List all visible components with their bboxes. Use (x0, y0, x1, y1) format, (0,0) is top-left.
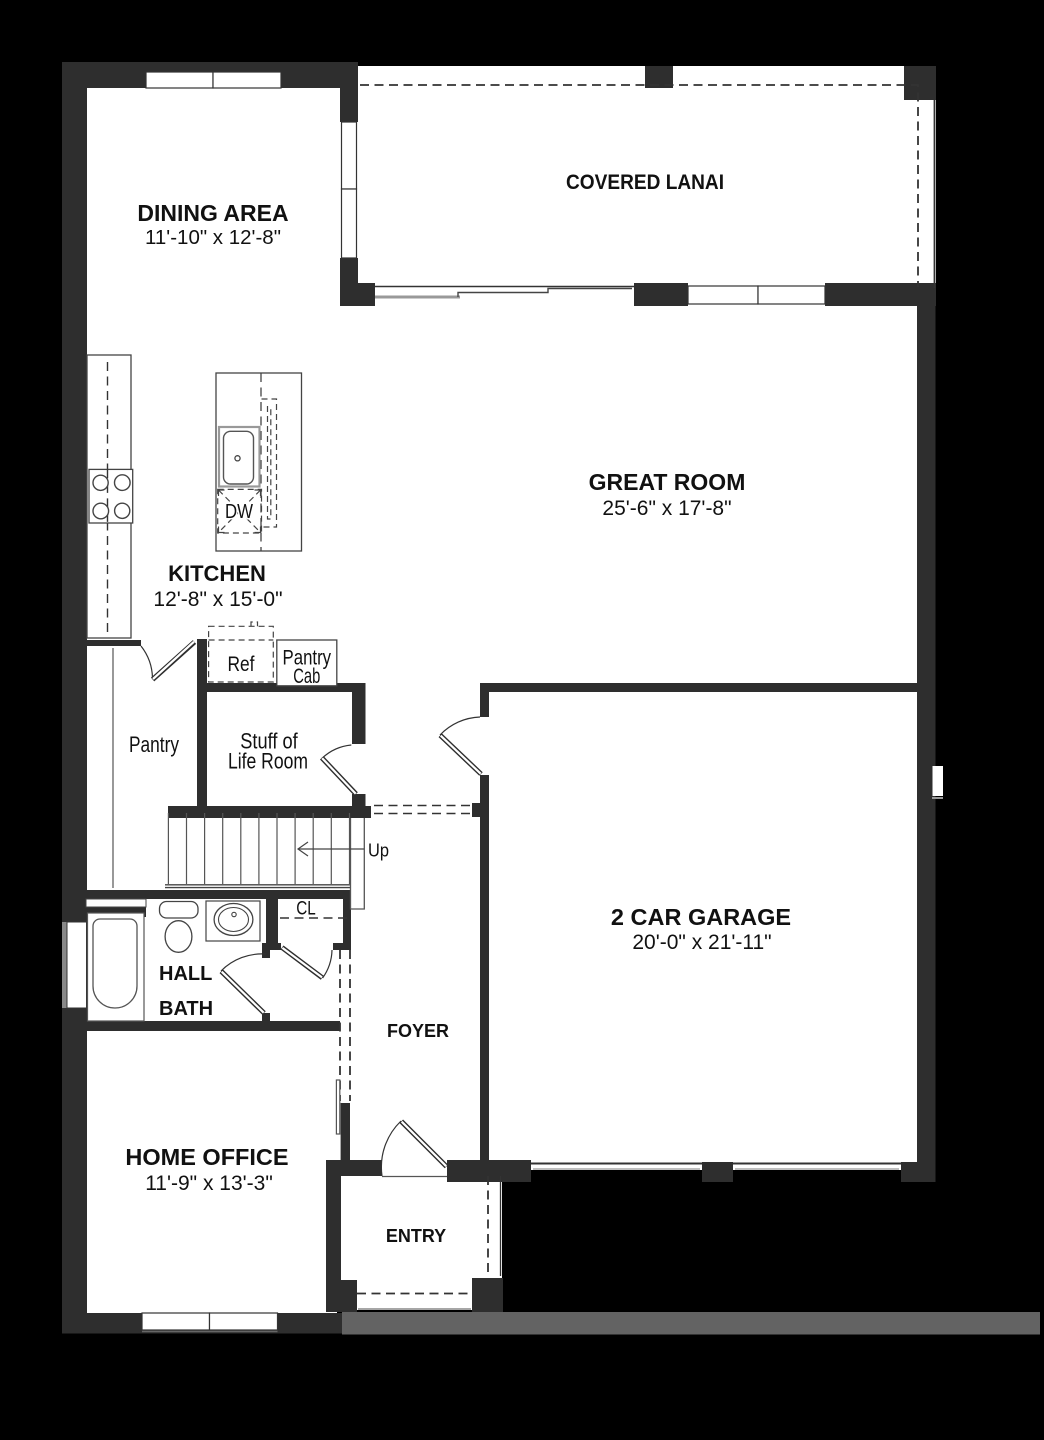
svg-text:Ref: Ref (228, 653, 255, 676)
svg-text:CL: CL (296, 899, 316, 920)
svg-text:HOME OFFICE: HOME OFFICE (125, 1144, 288, 1170)
svg-text:25'-6" x 17'-8": 25'-6" x 17'-8" (602, 497, 731, 520)
svg-text:20'-0" x 21'-11": 20'-0" x 21'-11" (632, 931, 771, 954)
svg-text:HALL: HALL (159, 963, 212, 985)
svg-text:Pantry: Pantry (129, 732, 179, 757)
svg-text:Cab: Cab (293, 665, 320, 688)
svg-text:KITCHEN: KITCHEN (168, 561, 266, 586)
svg-text:ENTRY: ENTRY (386, 1226, 446, 1246)
svg-text:FOYER: FOYER (387, 1021, 449, 1041)
svg-text:COVERED LANAI: COVERED LANAI (566, 170, 724, 194)
svg-text:11'-9" x 13'-3": 11'-9" x 13'-3" (145, 1172, 273, 1195)
svg-text:2 CAR GARAGE: 2 CAR GARAGE (611, 904, 791, 930)
svg-text:12'-8" x 15'-0": 12'-8" x 15'-0" (153, 588, 282, 611)
svg-text:DINING AREA: DINING AREA (137, 200, 288, 226)
svg-text:DW: DW (225, 501, 253, 523)
svg-text:BATH: BATH (159, 998, 213, 1020)
svg-text:GREAT ROOM: GREAT ROOM (589, 469, 746, 495)
svg-text:Up: Up (368, 841, 389, 861)
svg-text:Life Room: Life Room (228, 749, 308, 774)
svg-text:11'-10" x 12'-8": 11'-10" x 12'-8" (145, 226, 281, 249)
